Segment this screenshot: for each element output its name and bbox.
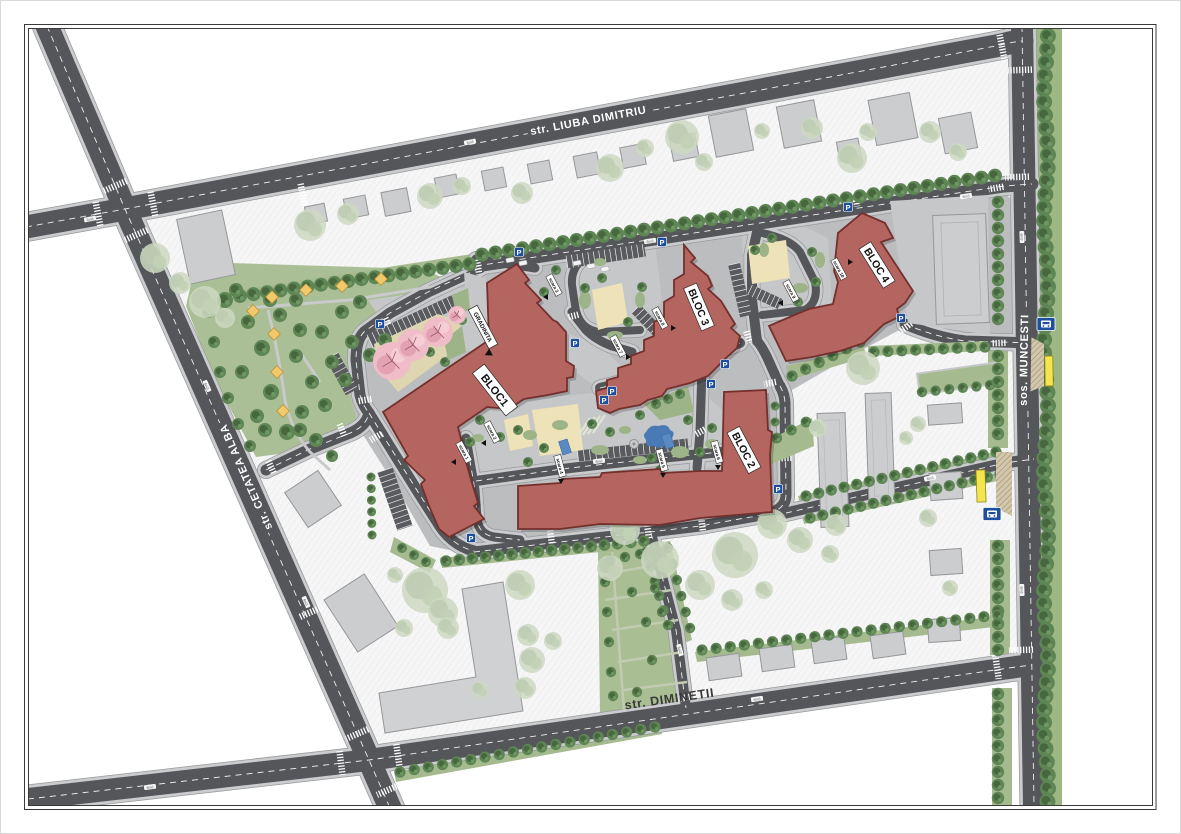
svg-text:P: P [601, 396, 606, 405]
svg-text:sos. MUNCESTI: sos. MUNCESTI [1018, 314, 1032, 406]
svg-text:P: P [659, 238, 664, 247]
svg-text:P: P [722, 360, 727, 369]
svg-text:P: P [775, 485, 780, 494]
svg-text:P: P [516, 248, 521, 257]
svg-text:P: P [609, 387, 614, 396]
svg-text:P: P [468, 534, 473, 543]
svg-text:P: P [377, 320, 382, 329]
svg-text:P: P [845, 203, 850, 212]
svg-text:P: P [708, 380, 713, 389]
svg-text:P: P [898, 314, 903, 323]
svg-text:6m3: 6m3 [1019, 233, 1023, 240]
svg-text:6m3: 6m3 [146, 785, 153, 790]
svg-text:6m3: 6m3 [1019, 586, 1023, 593]
svg-text:P: P [572, 339, 577, 348]
svg-text:6m3: 6m3 [595, 459, 602, 464]
